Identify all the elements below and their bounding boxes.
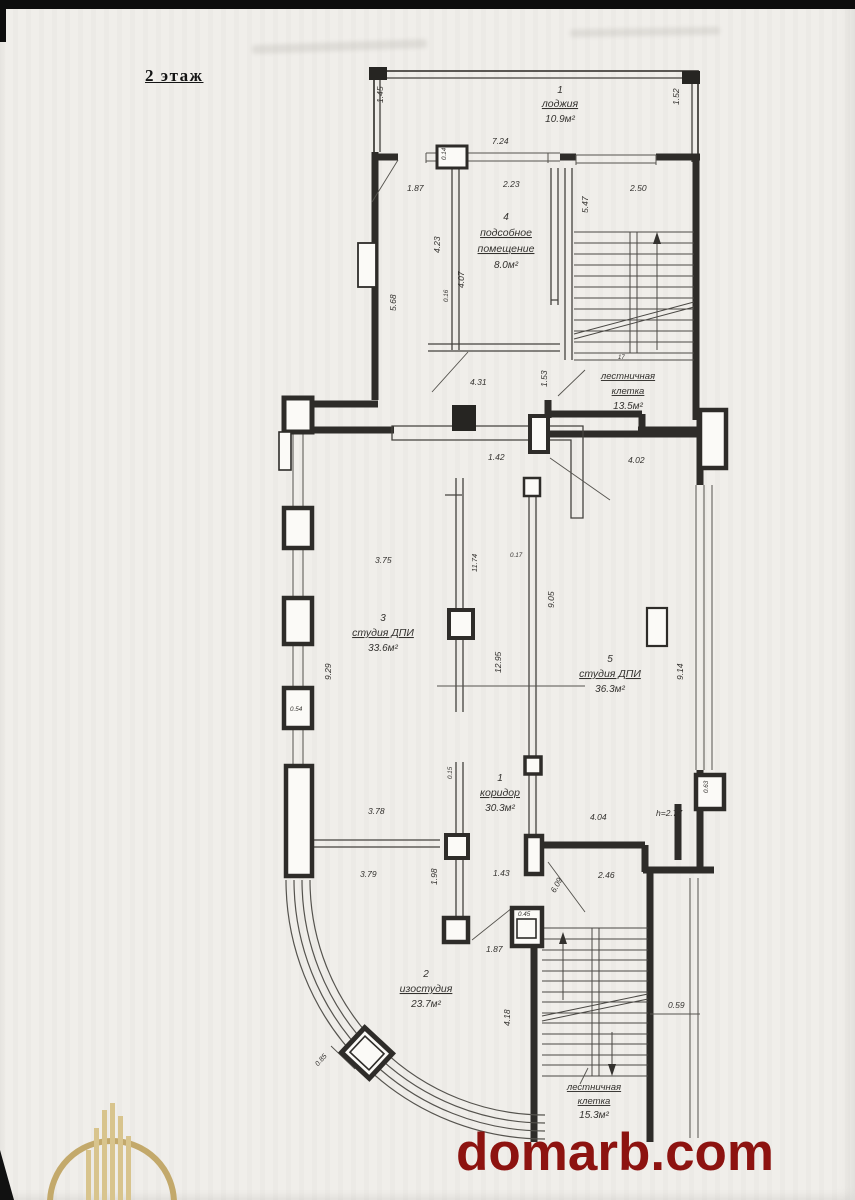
wall-step-out bbox=[700, 410, 726, 468]
l-shaped-duct-wall bbox=[392, 426, 583, 518]
dim-label: 4.02 bbox=[628, 455, 645, 465]
scanned-floor-plan-page: 2 этаж bbox=[0, 0, 855, 1200]
dim-label: 4.07 bbox=[456, 271, 466, 288]
loggia-parapet-inner bbox=[380, 78, 692, 162]
room-number: 5 bbox=[607, 654, 613, 665]
dim-label: h=2.77 bbox=[656, 808, 683, 818]
dim-label: 4.23 bbox=[432, 236, 442, 253]
dim-label: 7.24 bbox=[492, 136, 509, 146]
dim-label: 12.95 bbox=[493, 651, 503, 673]
dim-label: 9.14 bbox=[675, 663, 685, 680]
dim-label: 4.04 bbox=[590, 812, 607, 822]
duct-box bbox=[647, 608, 667, 646]
wall-stub bbox=[526, 836, 542, 874]
dim-label: 1.98 bbox=[429, 868, 439, 885]
stair-down-arrow bbox=[608, 1064, 616, 1076]
room-area: 10.9м² bbox=[545, 114, 575, 125]
column-block bbox=[449, 610, 473, 638]
dim-label: 0.15 bbox=[447, 766, 454, 779]
door-jamb-notch bbox=[517, 919, 536, 938]
facade-tab bbox=[279, 432, 291, 470]
wall-niche bbox=[358, 243, 376, 287]
dim-label: 9.05 bbox=[546, 591, 556, 608]
dim-label: 1.87 bbox=[407, 183, 424, 193]
room-name: студия ДПИ bbox=[579, 668, 641, 680]
room-area: 36.3м² bbox=[595, 684, 625, 695]
wall-jog-box bbox=[696, 775, 724, 809]
pilaster bbox=[284, 508, 312, 548]
room-name: клетка bbox=[578, 1096, 611, 1107]
dim-label: 0.85 bbox=[314, 1053, 328, 1068]
dim-label: 4.31 bbox=[470, 377, 487, 387]
room-number: 2 bbox=[422, 969, 429, 980]
stair-riser-mark: 17 bbox=[618, 355, 625, 361]
room-area: 33.6м² bbox=[368, 643, 398, 654]
pilaster bbox=[284, 598, 312, 644]
room-name: студия ДПИ bbox=[352, 627, 414, 639]
room-area: 13.5м² bbox=[613, 401, 643, 412]
stair-treads bbox=[574, 232, 694, 360]
wall-stub bbox=[530, 416, 548, 452]
dim-label: 5.68 bbox=[388, 294, 398, 311]
corner-pier bbox=[284, 398, 312, 432]
stair-break-line bbox=[542, 994, 648, 1021]
dim-label: 6.09 bbox=[549, 876, 565, 894]
room-number: 1 bbox=[497, 773, 503, 784]
dim-label: 1.87 bbox=[486, 944, 503, 954]
dim-label: 1.43 bbox=[493, 868, 510, 878]
dim-label: 0.14 bbox=[441, 147, 448, 160]
staircase-bottom bbox=[542, 928, 648, 1076]
room-name: подсобное bbox=[480, 227, 532, 239]
dim-label: 2.23 bbox=[502, 179, 520, 189]
agency-logo bbox=[50, 1103, 174, 1200]
dim-label: 1.45 bbox=[375, 86, 385, 103]
loggia-corner-block bbox=[369, 67, 387, 80]
dim-label: 11.74 bbox=[470, 554, 479, 572]
scan-edge-bottom-wedge bbox=[0, 1150, 14, 1200]
floor-plan-drawing: 1.45 1.52 7.24 1.87 2.23 2.50 5.47 4.23 … bbox=[0, 0, 855, 1200]
partition-end-block bbox=[524, 478, 540, 496]
column-block bbox=[444, 918, 468, 942]
loggia-corner-block bbox=[682, 71, 700, 84]
dim-label: 0.54 bbox=[290, 706, 303, 713]
dim-label: 2.50 bbox=[629, 183, 647, 193]
partition-end-block bbox=[525, 757, 541, 774]
room-name: лестничная bbox=[600, 371, 655, 382]
watermark: domarb.com bbox=[456, 1122, 774, 1183]
loggia-parapet-outer bbox=[374, 71, 698, 162]
dim-label: 4.18 bbox=[502, 1009, 512, 1026]
facade-pier bbox=[286, 766, 312, 876]
room-number: 1 bbox=[557, 85, 563, 96]
room-name: изостудия bbox=[400, 983, 453, 995]
room-area: 23.7м² bbox=[410, 999, 441, 1010]
room-name: лестничная bbox=[566, 1082, 621, 1093]
dim-label: 0.17 bbox=[510, 552, 523, 559]
dim-label: 0.16 bbox=[443, 289, 450, 302]
dim-label: 0.59 bbox=[668, 1000, 685, 1010]
dim-label: 5.47 bbox=[580, 196, 590, 213]
dim-label: 2.46 bbox=[597, 870, 615, 880]
room-area: 8.0м² bbox=[494, 260, 519, 271]
dim-label: 0.45 bbox=[518, 911, 531, 918]
stair-direction-line bbox=[563, 938, 612, 1070]
column-block bbox=[452, 405, 476, 431]
room-number: 3 bbox=[380, 613, 386, 624]
staircase-top bbox=[574, 232, 694, 360]
room-labels-group: 1 лоджия 10.9м² 4 подсобное помещение 8.… bbox=[352, 85, 655, 1121]
room-area: 15.3м² bbox=[579, 1110, 609, 1121]
column-block bbox=[446, 835, 468, 858]
room-name: помещение bbox=[478, 243, 535, 255]
dim-label: 3.75 bbox=[375, 555, 392, 565]
dim-label: 3.78 bbox=[368, 806, 385, 816]
dim-label: 1.52 bbox=[671, 88, 681, 105]
dim-label: 1.42 bbox=[488, 452, 505, 462]
piers-group bbox=[279, 146, 726, 1078]
logo-skyline-bars-icon bbox=[86, 1103, 131, 1200]
thin-partition-walls bbox=[310, 168, 572, 918]
stair-up-arrow bbox=[653, 232, 661, 244]
room-name: лоджия bbox=[541, 98, 579, 110]
room-number: 4 bbox=[503, 212, 509, 223]
room-name: клетка bbox=[612, 386, 645, 397]
dim-label: 3.79 bbox=[360, 869, 377, 879]
dim-label: 1.53 bbox=[539, 370, 549, 387]
stair-up-arrow bbox=[559, 932, 567, 944]
room-area: 30.3м² bbox=[485, 803, 515, 814]
dim-label: 0.63 bbox=[703, 780, 710, 793]
room-name: коридор bbox=[480, 787, 520, 799]
dim-label: 9.29 bbox=[323, 663, 333, 680]
